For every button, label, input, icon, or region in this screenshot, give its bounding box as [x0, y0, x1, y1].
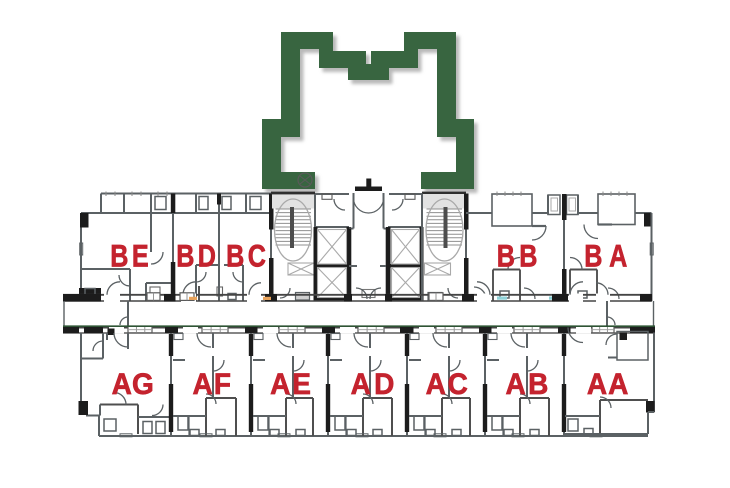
svg-text:A: A [608, 368, 628, 401]
svg-text:A: A [351, 368, 371, 401]
svg-text:B: B [226, 239, 244, 274]
svg-text:D: D [374, 368, 394, 401]
svg-text:C: C [248, 239, 266, 274]
svg-text:B: B [497, 239, 515, 274]
svg-text:C: C [448, 368, 468, 401]
svg-text:B: B [519, 239, 537, 274]
svg-text:A: A [609, 239, 627, 274]
svg-text:G: G [132, 368, 154, 401]
svg-text:E: E [132, 239, 149, 274]
svg-text:A: A [505, 368, 525, 401]
svg-text:E: E [292, 368, 311, 401]
svg-text:A: A [192, 368, 212, 401]
svg-text:B: B [528, 368, 548, 401]
svg-text:F: F [214, 368, 231, 401]
svg-text:A: A [587, 368, 607, 401]
svg-text:B: B [584, 239, 602, 274]
svg-text:B: B [110, 239, 128, 274]
svg-text:A: A [426, 368, 446, 401]
svg-text:B: B [176, 239, 194, 274]
svg-text:A: A [270, 368, 290, 401]
svg-text:D: D [198, 239, 216, 274]
svg-text:A: A [112, 368, 132, 401]
